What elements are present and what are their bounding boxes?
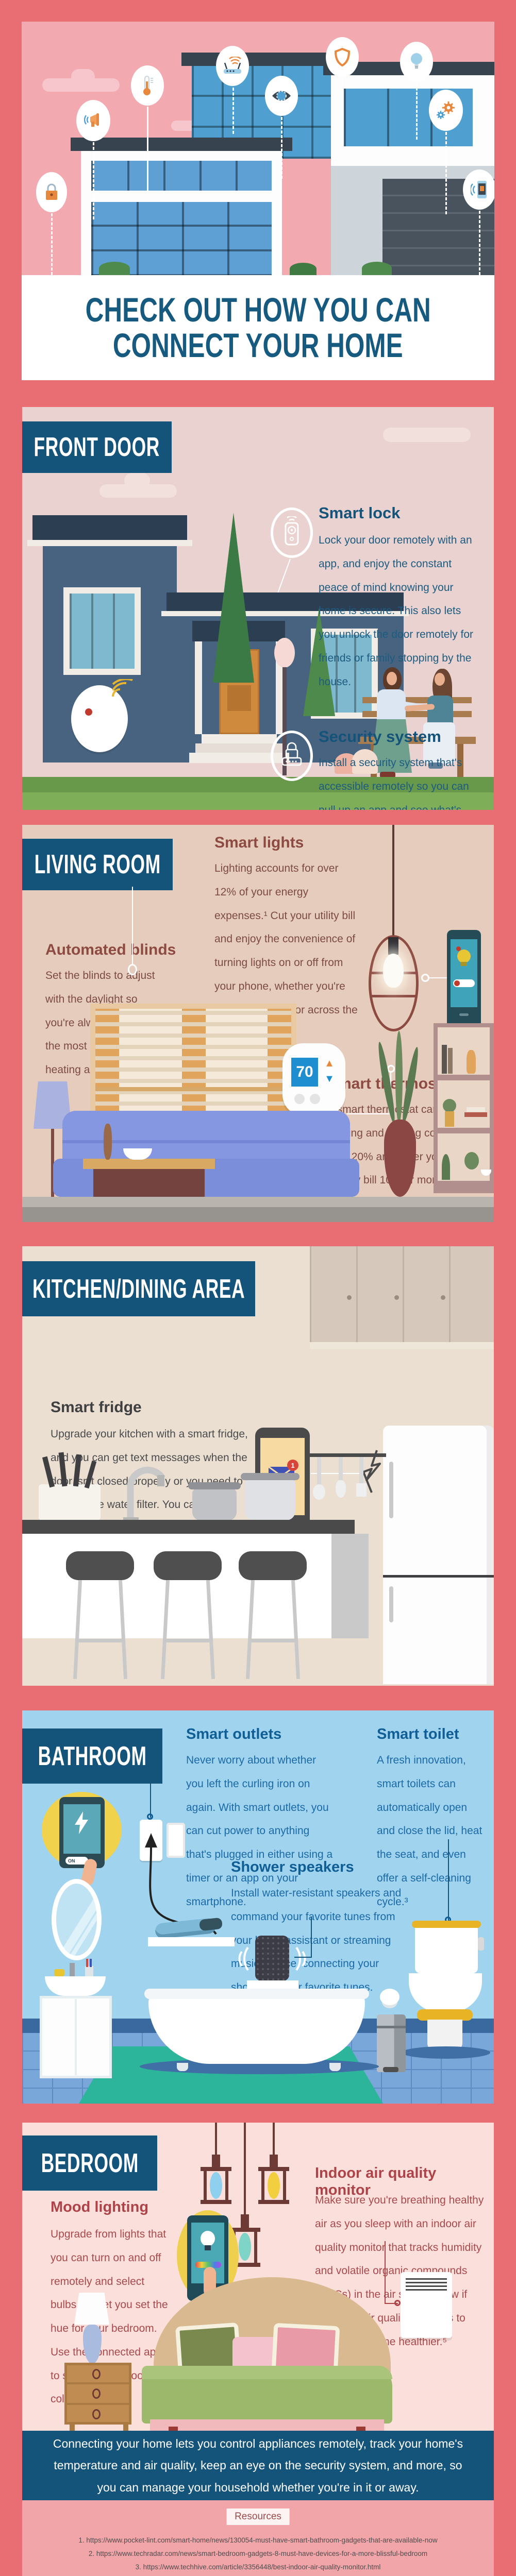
- resources-label: Resources: [235, 2511, 281, 2522]
- pendant-lamp-yellow: [258, 2155, 289, 2210]
- phone-home-bar: [459, 1013, 469, 1016]
- shower-speaker: [255, 1936, 289, 1981]
- fridge-handle: [389, 1586, 393, 1622]
- island-front: [22, 1534, 331, 1638]
- monitor-vents: [406, 2277, 447, 2291]
- gears-icon: [429, 90, 463, 131]
- lightning-icon: [74, 1811, 89, 1834]
- notification-badge: 1: [287, 1460, 298, 1471]
- utensil-skimmer-head: [313, 1484, 325, 1500]
- title-band: CHECK OUT HOW YOU CAN CONNECT YOUR HOME: [22, 275, 494, 380]
- dashed-connector: [281, 117, 282, 179]
- lamp-cage-band: [372, 995, 415, 997]
- toilet-seat-ring: [417, 2009, 473, 2021]
- dashed-connector: [416, 83, 418, 140]
- door-steps: [195, 743, 283, 753]
- faucet: [120, 1460, 177, 1521]
- notification-count: 1: [291, 1462, 294, 1469]
- drawer-handle[interactable]: [92, 2409, 101, 2419]
- toilet-flush-button[interactable]: [478, 1937, 484, 1951]
- house-window-band: [91, 161, 272, 191]
- fridge-handle: [389, 1462, 393, 1518]
- stool-crossbar: [165, 1639, 211, 1642]
- pendant-cord: [273, 2123, 275, 2157]
- toothbrush: [90, 1959, 92, 1967]
- bed-skirt: [150, 2419, 384, 2431]
- smart-toilet-heading: Smart toilet: [377, 1726, 459, 1743]
- section-living-room: LIVING ROOM Smart lights Lighting accoun…: [22, 825, 494, 1222]
- drawer-handle[interactable]: [92, 2388, 101, 2399]
- security-system-heading: Security system: [319, 727, 441, 746]
- outlet-connector: [150, 1777, 151, 1818]
- page-title-line1: CHECK OUT HOW YOU CAN: [28, 292, 488, 328]
- bush: [290, 263, 317, 275]
- camera-led: [85, 708, 92, 716]
- smart-fridge-heading: Smart fridge: [51, 1399, 142, 1416]
- cabinet-bottom-strip: [310, 1342, 494, 1349]
- shelf-plant: [443, 1099, 456, 1112]
- utensil-whisk-head: [336, 1480, 346, 1498]
- bathtub: [148, 1993, 365, 2064]
- phone-connector-ring: [421, 974, 429, 982]
- blinds-connector-ring: [128, 964, 137, 975]
- toilet-paper: [380, 1989, 400, 2005]
- smartphone-icon: [463, 170, 494, 210]
- sound-waves-left: [237, 1943, 252, 1974]
- security-system-body: Install a security system that's accessi…: [319, 751, 478, 810]
- trash-pedal: [383, 2067, 398, 2072]
- stool-seat: [66, 1551, 134, 1580]
- outlet-connector-ring: [147, 1814, 153, 1820]
- thermostat-connector: [347, 1113, 391, 1114]
- security-system-icon: [271, 731, 313, 781]
- toilet-connector: [448, 1839, 449, 1921]
- bathtub-rim: [144, 1989, 369, 1999]
- thermostat-reading: 70: [296, 1063, 313, 1081]
- utensil-spatula: [359, 1457, 363, 1486]
- bay-window-glass: [70, 594, 135, 669]
- smart-lock-heading: Smart lock: [319, 504, 401, 522]
- blinds-connector: [132, 887, 133, 964]
- bookshelf: [434, 1023, 494, 1193]
- floor-strip-light: [22, 1197, 494, 1207]
- sound-waves-right: [292, 1943, 308, 1974]
- monitor-connector: [385, 2241, 386, 2304]
- drawer-line: [66, 2403, 129, 2405]
- pendant-cord: [215, 2123, 217, 2157]
- resources-panel: Resources 1. https://www.pocket-lint.com…: [22, 2500, 494, 2576]
- bed-leg: [356, 2427, 365, 2431]
- porch-roof-upper: [32, 515, 187, 544]
- megaphone-icon: [76, 100, 110, 141]
- porch-column: [195, 641, 202, 734]
- sink-bowl: [45, 1976, 106, 1996]
- cabinet-knob: [441, 1295, 445, 1300]
- trash-can: [377, 2014, 406, 2072]
- shield-icon: [326, 37, 359, 77]
- bulb-blue: [210, 2172, 222, 2199]
- dashed-connector: [51, 213, 53, 275]
- table-vase: [104, 1124, 112, 1160]
- book: [448, 1048, 453, 1074]
- shelf-bowl: [481, 1170, 491, 1176]
- shower-speakers-heading: Shower speakers: [231, 1859, 354, 1876]
- pendant-cord: [244, 2123, 246, 2216]
- blanket-fold: [142, 2366, 392, 2379]
- stool-seat: [154, 1551, 222, 1580]
- drawer-handle[interactable]: [92, 2369, 101, 2379]
- wifi-router-icon: [216, 46, 249, 86]
- fridge: [383, 1426, 494, 1684]
- thermostat-up-button[interactable]: ▲: [323, 1058, 336, 1070]
- lamp-bulb: [383, 954, 404, 988]
- toilet-tank-lid: [412, 1921, 481, 1928]
- bulb-yellow: [268, 2172, 280, 2199]
- dashed-connector: [445, 132, 447, 214]
- dashed-connector: [93, 142, 94, 219]
- phone-alert-dot: [456, 946, 461, 951]
- pot-large-lid: [241, 1473, 299, 1480]
- pot-small: [192, 1488, 237, 1520]
- utensil-spatula-head: [356, 1483, 367, 1497]
- island-side: [331, 1534, 369, 1638]
- resources-label-box: Resources: [226, 2509, 290, 2525]
- mirror: [52, 1879, 102, 1960]
- bush: [362, 262, 392, 275]
- hero-illustration: [22, 22, 494, 275]
- lamp-socket: [388, 937, 398, 955]
- pot-large: [245, 1479, 295, 1520]
- book: [442, 1045, 447, 1074]
- speaker-connector: [311, 1917, 312, 1958]
- plant-leaf: [395, 1031, 403, 1124]
- utensil-rail: [309, 1453, 386, 1457]
- stool-seat: [239, 1551, 307, 1580]
- cabinet-divider: [75, 1999, 77, 2075]
- phone-connector: [428, 977, 447, 978]
- shelf-plant: [442, 1154, 450, 1180]
- toilet-pedestal: [427, 2020, 462, 2050]
- toothbrush: [86, 1959, 88, 1967]
- section-badge-bedroom: BEDROOM: [22, 2136, 157, 2191]
- stool-crossbar: [251, 1639, 296, 1642]
- section-kitchen: KITCHEN/DINING AREA Smart fridge Upgrade…: [22, 1246, 494, 1686]
- stool-crossbar: [78, 1639, 123, 1642]
- nightstand-lamp-shade: [74, 2293, 109, 2325]
- thermostat-button[interactable]: [310, 1094, 320, 1104]
- section-badge-bathroom: BATHROOM: [22, 1728, 162, 1784]
- speaker-connector: [294, 1957, 312, 1958]
- mood-lighting-heading: Mood lighting: [51, 2199, 148, 2216]
- mood-bulb-glyph: [201, 2231, 215, 2246]
- camera-wifi-arcs: [110, 679, 134, 700]
- lamp-cord: [392, 825, 394, 936]
- house-roof-left: [71, 138, 292, 151]
- nightstand-leg: [70, 2425, 75, 2431]
- dashed-connector: [342, 78, 343, 145]
- thermostat-screen: 70: [291, 1058, 318, 1087]
- trash-can-lid-line: [377, 2026, 406, 2028]
- lightbulb-icon: [400, 42, 433, 82]
- bathtub-foot: [177, 2063, 188, 2071]
- toilet-bowl: [409, 1973, 482, 2012]
- bulb-teal: [239, 2233, 251, 2261]
- shelf-ball-plant: [464, 1152, 479, 1170]
- phone-bulb-base: [461, 962, 467, 966]
- dashed-connector: [479, 211, 480, 275]
- book-stack: [464, 1112, 487, 1117]
- section-badge-living-room: LIVING ROOM: [22, 839, 173, 890]
- bed-leg: [169, 2427, 178, 2431]
- blinds-mid-rail: [95, 1087, 291, 1091]
- on-toggle-label: ON: [68, 1858, 75, 1863]
- knife-block: [39, 1484, 101, 1520]
- pot-small-lid: [188, 1482, 241, 1489]
- shelf-pot: [445, 1111, 454, 1127]
- floor-strip-dark: [22, 1207, 494, 1222]
- toiletry-cup: [85, 1966, 93, 1976]
- utensil-whisk: [339, 1457, 343, 1483]
- coffee-table-top: [83, 1159, 215, 1169]
- footer-summary-band: Connecting your home lets you control ap…: [22, 2431, 494, 2500]
- cabinet-knob: [394, 1295, 399, 1300]
- automated-blinds-heading: Automated blinds: [45, 941, 176, 959]
- shelf-vase: [467, 1050, 476, 1074]
- toiletry-faucet: [70, 1963, 75, 1976]
- section-bedroom: BEDROOM Indoor air quality monitor Make …: [22, 2123, 494, 2431]
- thermostat-button[interactable]: [294, 1094, 305, 1104]
- phone-toggle-knob: [454, 980, 460, 986]
- footer-summary-text: Connecting your home lets you control ap…: [52, 2433, 464, 2499]
- thermostat-down-button[interactable]: ▼: [323, 1073, 336, 1086]
- toilet-shadow: [402, 2046, 490, 2059]
- padlock-icon: [36, 172, 67, 212]
- infographic-canvas: CHECK OUT HOW YOU CAN CONNECT YOUR HOME …: [0, 0, 516, 2576]
- nightstand-leg: [123, 2425, 128, 2431]
- lamppost-globe: [274, 638, 295, 668]
- monitor-connector-ring: [394, 2300, 401, 2306]
- coffee-table-base: [93, 1169, 205, 1198]
- toiletry-soap: [54, 1969, 64, 1976]
- phone-bulb-glyph: [457, 950, 471, 963]
- section-front-door: FRONT DOOR: [22, 407, 494, 810]
- iron-shelf: [148, 1937, 235, 1946]
- section-badge-kitchen: KITCHEN/DINING AREA: [22, 1261, 255, 1316]
- fridge-split-line: [383, 1575, 494, 1578]
- utensil-skimmer: [317, 1457, 321, 1487]
- porch-fascia-upper: [27, 540, 192, 546]
- mood-bulb-base: [205, 2245, 211, 2250]
- page-title-line2: CONNECT YOUR HOME: [64, 328, 452, 363]
- resource-item: 2. https://www.techradar.com/news/smart-…: [22, 2550, 494, 2557]
- drawer-line: [66, 2382, 129, 2384]
- dashed-connector: [232, 88, 234, 134]
- smart-lock-icon: [271, 507, 313, 558]
- thermometer-icon: [131, 65, 164, 106]
- upper-cabinets: [310, 1246, 494, 1349]
- pendant-lamp-blue: [201, 2155, 231, 2210]
- section-bathroom: BATHROOM Smart outlets Never worry about…: [22, 1710, 494, 2104]
- resource-item: 1. https://www.pocket-lint.com/smart-hom…: [22, 2536, 494, 2544]
- door-panel: [227, 685, 251, 711]
- book-stack: [467, 1107, 485, 1112]
- cloud: [71, 69, 95, 84]
- eye-icon: [265, 76, 298, 116]
- bathtub-foot: [329, 2063, 341, 2071]
- counter-top: [22, 1520, 355, 1534]
- door-steps: [202, 734, 277, 743]
- dashed-connector: [147, 107, 148, 194]
- resource-item: 3. https://www.techhive.com/article/3356…: [22, 2563, 494, 2571]
- bush: [99, 262, 130, 275]
- smart-lock-body: Lock your door remotely with an app, and…: [319, 529, 478, 693]
- cabinet-knob: [347, 1295, 352, 1300]
- smart-outlets-heading: Smart outlets: [186, 1726, 281, 1743]
- toilet-tank: [415, 1924, 478, 1973]
- smart-lights-heading: Smart lights: [214, 834, 304, 852]
